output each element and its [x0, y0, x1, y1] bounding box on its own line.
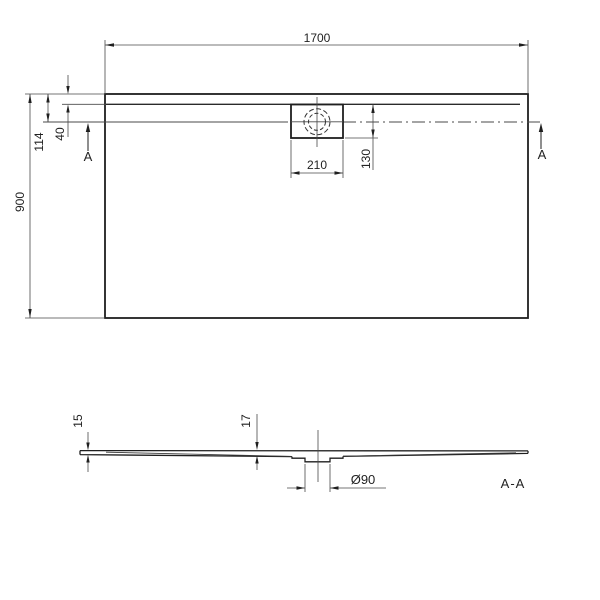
dim-210-label: 210 — [307, 158, 327, 172]
arrowhead-up-icon — [86, 455, 89, 463]
dim-1700-extension-lines — [105, 40, 528, 94]
section-title: A-A — [501, 476, 526, 491]
dim-40-label: 40 — [53, 127, 67, 141]
arrowhead-left-icon — [105, 43, 114, 47]
arrowhead-down-icon — [371, 130, 374, 139]
arrowhead-right-icon — [335, 171, 344, 174]
arrowhead-down-icon — [255, 442, 258, 450]
dim-1700-label: 1700 — [304, 31, 331, 45]
dim-900-label: 900 — [13, 192, 27, 212]
arrowhead-down-icon — [28, 309, 31, 318]
tray-section-profile — [80, 451, 528, 462]
drawing-page: 1700 900 114 40 210 130 A A 15 17 Ø90 A-… — [0, 0, 600, 600]
arrowhead-up-icon — [28, 94, 31, 103]
arrowhead-left-icon — [291, 171, 300, 174]
section-arrow-up-icon — [539, 123, 543, 132]
arrowhead-up-icon — [46, 94, 49, 103]
dim-130-label: 130 — [359, 149, 373, 169]
arrowhead-right-icon — [519, 43, 528, 47]
dim-diameter-label: Ø90 — [351, 472, 376, 487]
arrowhead-up-icon — [371, 105, 374, 114]
section-marker-left-label: A — [84, 149, 93, 164]
arrowhead-down-icon — [66, 86, 69, 94]
plan-view — [25, 40, 543, 318]
dim-diameter-extension-lines — [305, 464, 330, 492]
section-arrow-up-icon — [86, 123, 90, 132]
dim-15-label: 15 — [71, 414, 85, 428]
arrowhead-down-icon — [86, 443, 89, 451]
arrowhead-up-icon — [66, 105, 69, 113]
arrowhead-down-icon — [46, 114, 49, 123]
technical-drawing-canvas: 1700 900 114 40 210 130 A A 15 17 Ø90 A-… — [0, 0, 600, 600]
arrowhead-left-icon — [330, 486, 339, 489]
arrowhead-right-icon — [297, 486, 306, 489]
section-marker-right-label: A — [538, 147, 547, 162]
dim-17-label: 17 — [239, 414, 253, 428]
dim-114-label: 114 — [32, 132, 46, 151]
section-view — [80, 414, 528, 492]
